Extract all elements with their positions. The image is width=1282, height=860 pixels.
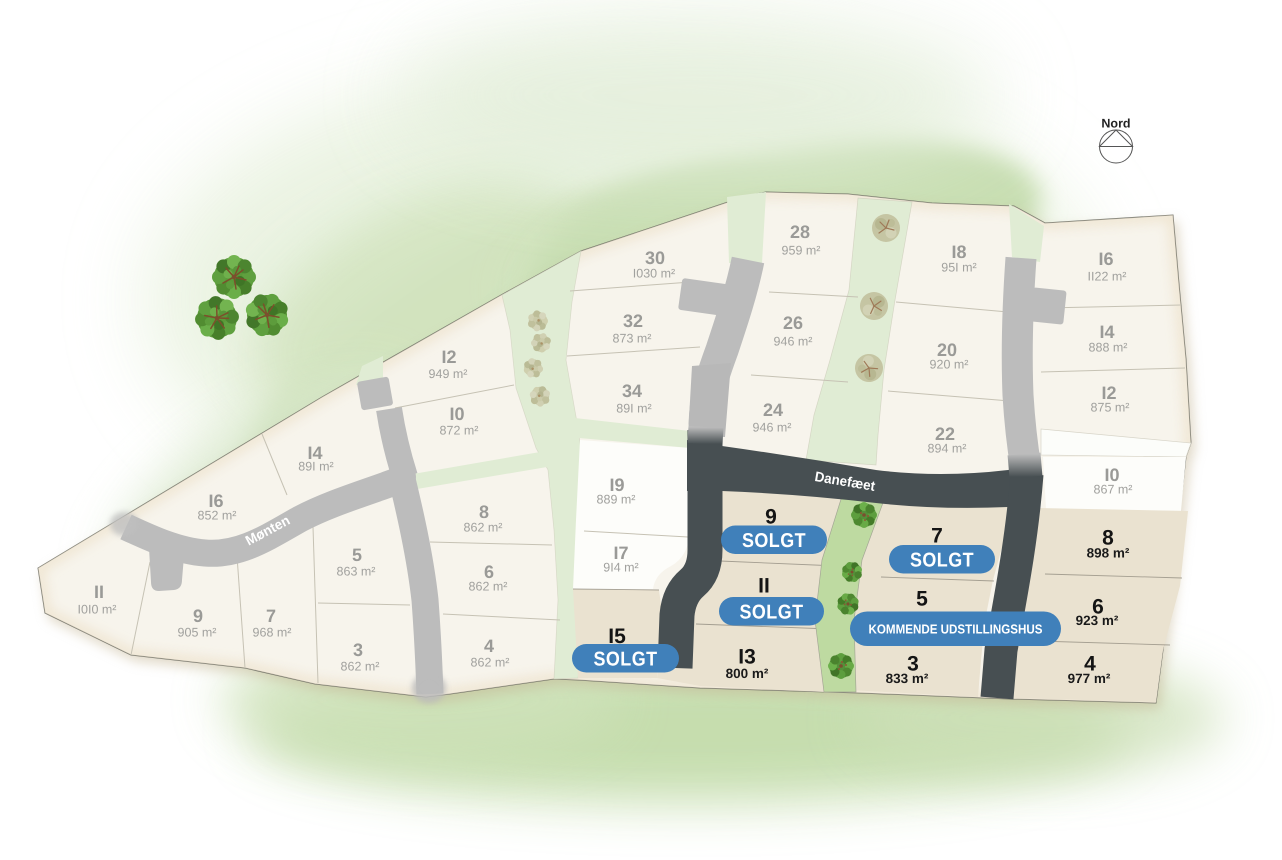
svg-text:I0I0 m²: I0I0 m²: [78, 603, 117, 617]
svg-text:7: 7: [266, 606, 276, 626]
svg-text:II: II: [758, 575, 770, 598]
svg-text:KOMMENDE UDSTILLINGSHUS: KOMMENDE UDSTILLINGSHUS: [869, 622, 1043, 637]
svg-text:862 m²: 862 m²: [341, 660, 380, 674]
svg-text:800 m²: 800 m²: [726, 666, 769, 681]
svg-text:I6: I6: [1098, 249, 1113, 269]
svg-text:7: 7: [931, 525, 943, 548]
svg-text:34: 34: [622, 381, 642, 401]
svg-text:30: 30: [645, 248, 665, 268]
svg-text:852 m²: 852 m²: [198, 509, 237, 523]
svg-text:946 m²: 946 m²: [774, 335, 813, 349]
svg-text:5: 5: [916, 588, 928, 611]
svg-text:862 m²: 862 m²: [471, 656, 510, 670]
svg-text:898 m²: 898 m²: [1087, 546, 1130, 561]
svg-text:II22 m²: II22 m²: [1088, 270, 1127, 284]
svg-text:28: 28: [790, 222, 810, 242]
svg-text:867 m²: 867 m²: [1094, 483, 1133, 497]
svg-text:26: 26: [783, 313, 803, 333]
svg-text:949 m²: 949 m²: [429, 367, 468, 381]
svg-text:894 m²: 894 m²: [928, 442, 967, 456]
svg-text:905 m²: 905 m²: [178, 626, 217, 640]
svg-text:946 m²: 946 m²: [753, 421, 792, 435]
svg-text:923 m²: 923 m²: [1076, 613, 1119, 628]
svg-text:32: 32: [623, 311, 643, 331]
svg-text:872 m²: 872 m²: [440, 424, 479, 438]
svg-text:862 m²: 862 m²: [464, 521, 503, 535]
svg-text:863 m²: 863 m²: [337, 565, 376, 579]
svg-text:968 m²: 968 m²: [253, 626, 292, 640]
svg-text:9I4 m²: 9I4 m²: [603, 561, 638, 575]
svg-text:89I m²: 89I m²: [616, 402, 651, 416]
svg-text:4: 4: [484, 636, 494, 656]
svg-text:889 m²: 889 m²: [597, 493, 636, 507]
svg-text:5: 5: [352, 545, 362, 565]
svg-text:833 m²: 833 m²: [886, 671, 929, 686]
svg-text:89I m²: 89I m²: [298, 460, 333, 474]
svg-text:SOLGT: SOLGT: [742, 530, 806, 552]
svg-text:SOLGT: SOLGT: [594, 649, 658, 671]
svg-text:875 m²: 875 m²: [1091, 401, 1130, 415]
svg-text:I8: I8: [951, 242, 966, 262]
svg-text:9: 9: [765, 506, 777, 529]
svg-text:977 m²: 977 m²: [1068, 671, 1111, 686]
svg-text:SOLGT: SOLGT: [740, 602, 804, 624]
svg-text:I4: I4: [1099, 322, 1114, 342]
svg-text:9: 9: [193, 606, 203, 626]
svg-text:I2: I2: [441, 347, 456, 367]
svg-text:Nord: Nord: [1101, 117, 1130, 131]
svg-text:I030 m²: I030 m²: [633, 267, 675, 281]
svg-text:8: 8: [479, 502, 489, 522]
svg-text:II: II: [94, 582, 104, 602]
svg-text:873 m²: 873 m²: [613, 332, 652, 346]
svg-text:95I m²: 95I m²: [941, 261, 976, 275]
svg-text:SOLGT: SOLGT: [910, 550, 974, 572]
svg-text:888 m²: 888 m²: [1089, 341, 1128, 355]
svg-text:862 m²: 862 m²: [469, 580, 508, 594]
svg-text:I0: I0: [449, 404, 464, 424]
svg-text:959 m²: 959 m²: [782, 244, 821, 258]
svg-text:920 m²: 920 m²: [930, 358, 969, 372]
svg-text:24: 24: [763, 400, 783, 420]
svg-text:3: 3: [353, 640, 363, 660]
